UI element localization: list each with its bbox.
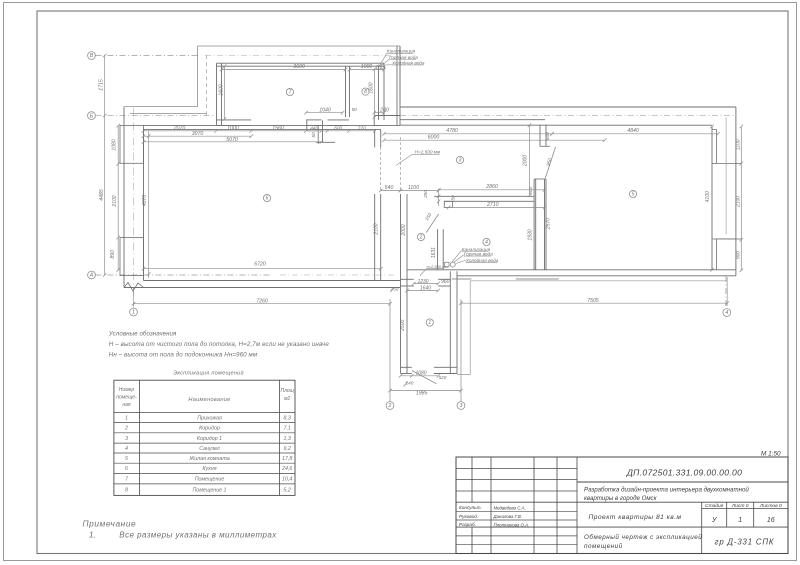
svg-text:1080: 1080 [415,371,426,377]
svg-text:50: 50 [352,107,358,112]
svg-text:Кухня: Кухня [202,466,216,472]
svg-text:Листов 0: Листов 0 [759,503,782,509]
svg-text:М 1:50: М 1:50 [761,450,781,457]
svg-text:Медведева С.А.: Медведева С.А. [494,505,526,510]
svg-text:Площ: Площ [280,388,294,394]
svg-text:7: 7 [289,90,292,96]
svg-text:Консульт.: Консульт. [459,505,482,510]
svg-text:2100: 2100 [374,223,380,235]
svg-text:Санузел: Санузел [199,446,220,452]
svg-text:5,2: 5,2 [284,487,291,493]
svg-text:600: 600 [334,126,342,131]
svg-text:Плотникова О.А.: Плотникова О.А. [494,522,530,527]
svg-text:4485: 4485 [99,189,105,201]
svg-text:А: А [89,273,94,279]
svg-text:440: 440 [310,126,318,131]
svg-text:250: 250 [423,190,428,199]
svg-text:2: 2 [388,403,392,409]
svg-text:3070: 3070 [192,131,204,137]
svg-text:Нн – высота от пола до подок: Нн – высота от пола до подоконника Нн=96… [109,352,258,359]
svg-text:гр Д-331 СПК: гр Д-331 СПК [715,538,775,547]
svg-text:1985: 1985 [416,390,428,396]
svg-text:6: 6 [266,196,269,202]
svg-text:3600: 3600 [293,64,305,70]
svg-text:4070: 4070 [142,195,148,206]
svg-text:50: 50 [311,132,316,138]
svg-text:Жилая комната: Жилая комната [188,456,229,462]
svg-text:400: 400 [528,187,533,195]
svg-text:4: 4 [485,240,488,246]
svg-text:1,3: 1,3 [284,436,291,442]
svg-text:5070: 5070 [226,137,238,143]
svg-text:720: 720 [358,126,366,131]
svg-text:1: 1 [125,415,128,421]
svg-text:540: 540 [385,185,394,191]
svg-text:Обмерный чертеж с экспликацией: Обмерный чертеж с экспликацией [584,533,702,541]
svg-text:1600: 1600 [219,84,225,95]
svg-text:9,2: 9,2 [284,446,291,452]
svg-text:1: 1 [132,310,135,316]
svg-text:В: В [90,53,94,59]
svg-text:Коридор 1: Коридор 1 [197,436,222,442]
svg-text:7505: 7505 [587,298,599,304]
svg-text:Наименование: Наименование [188,397,230,403]
svg-text:Все размеры указаны в миллимет: Все размеры указаны в миллиметрах [119,530,277,539]
svg-text:1040: 1040 [319,107,331,113]
svg-text:ная: ная [122,402,131,408]
svg-text:2570: 2570 [546,218,552,230]
svg-text:7,1: 7,1 [284,426,291,432]
svg-text:900: 900 [736,251,742,260]
svg-text:280: 280 [379,107,389,113]
svg-text:1560: 1560 [272,126,284,132]
svg-text:1: 1 [738,517,742,524]
svg-text:4100: 4100 [705,191,711,202]
svg-text:ДП.072501.331.09.00.00.00: ДП.072501.331.09.00.00.00 [626,467,742,477]
svg-text:4780: 4780 [446,128,458,134]
svg-text:1.: 1. [89,530,96,539]
svg-text:5: 5 [125,456,128,462]
svg-text:Примечание: Примечание [83,518,137,528]
svg-text:2000: 2000 [401,224,407,236]
svg-text:Прихожая: Прихожая [197,415,222,421]
svg-text:5: 5 [632,192,635,198]
svg-text:2100: 2100 [736,196,742,208]
svg-text:Холодная вода: Холодная вода [391,60,425,65]
svg-text:890: 890 [110,250,116,259]
svg-text:Экспликация помещений: Экспликация помещений [173,369,244,376]
svg-text:Горячая вода: Горячая вода [464,251,493,256]
svg-text:1600: 1600 [369,82,375,93]
svg-text:Коридор: Коридор [199,426,220,432]
svg-text:1100: 1100 [408,185,419,191]
svg-text:Разраб.: Разраб. [459,522,476,527]
svg-text:3: 3 [460,403,463,409]
svg-text:2710: 2710 [486,202,499,208]
svg-text:2500: 2500 [400,320,406,332]
svg-text:помещений: помещений [584,542,623,550]
svg-text:4: 4 [125,446,128,452]
svg-text:Разработка дизайн-проекта инте: Разработка дизайн-проекта интерьера двух… [584,486,749,493]
svg-text:м2: м2 [284,396,290,402]
svg-text:помеще-: помеще- [116,395,137,401]
svg-text:2100: 2100 [112,195,118,207]
svg-text:2860: 2860 [485,184,498,190]
svg-text:Холодная вода: Холодная вода [465,258,499,263]
svg-text:2: 2 [124,426,128,432]
svg-text:2070: 2070 [173,126,186,132]
svg-text:Лист 0: Лист 0 [731,503,749,509]
svg-text:17,8: 17,8 [282,456,292,462]
svg-text:1631: 1631 [431,247,437,258]
svg-text:1230: 1230 [417,279,428,285]
svg-text:Канализация: Канализация [387,49,416,54]
svg-text:Номер: Номер [119,387,135,393]
svg-text:1715: 1715 [99,79,105,91]
svg-text:Руковод.: Руковод. [459,514,478,519]
svg-text:Условные обозначения: Условные обозначения [108,331,177,338]
svg-text:1000: 1000 [361,64,373,70]
svg-text:6000: 6000 [428,134,440,140]
svg-text:2: 2 [419,235,423,241]
svg-text:6: 6 [125,466,128,472]
svg-text:4: 4 [725,310,728,316]
svg-text:1930: 1930 [528,229,534,240]
svg-text:8,3: 8,3 [284,415,291,421]
svg-text:Горячая вода: Горячая вода [389,55,418,60]
svg-text:1: 1 [428,320,431,326]
svg-text:Стадия: Стадия [705,503,724,509]
svg-text:Помещение: Помещение [195,476,225,482]
svg-text:24,6: 24,6 [281,466,292,472]
svg-text:1000: 1000 [227,126,239,132]
svg-text:4840: 4840 [627,128,639,134]
svg-text:3: 3 [125,436,128,442]
svg-text:600: 600 [545,132,550,140]
svg-text:3: 3 [459,158,462,164]
svg-text:8: 8 [125,487,128,493]
svg-text:1640: 1640 [420,286,431,292]
svg-text:Данилова Г.В.: Данилова Г.В. [493,514,522,519]
svg-text:квартиры в городе Омск: квартиры в городе Омск [584,495,658,502]
svg-text:520: 520 [439,375,447,380]
svg-text:8: 8 [364,89,367,95]
svg-text:16: 16 [767,517,775,524]
svg-text:Н – высота от чистого пола д: Н – высота от чистого пола до потолка, Н… [109,341,330,348]
svg-text:Н=2,500 мм: Н=2,500 мм [415,149,441,154]
svg-text:Помещение 1: Помещение 1 [192,487,226,493]
svg-text:6720: 6720 [254,261,266,267]
svg-text:960: 960 [441,279,450,285]
svg-text:10,4: 10,4 [282,476,292,482]
svg-text:7260: 7260 [256,299,268,305]
svg-text:50: 50 [450,195,455,201]
svg-text:1080: 1080 [112,139,118,150]
svg-text:2000: 2000 [523,155,529,167]
svg-text:Проект квартиры 81 кв.м: Проект квартиры 81 кв.м [588,514,681,521]
svg-text:1100: 1100 [736,139,742,150]
